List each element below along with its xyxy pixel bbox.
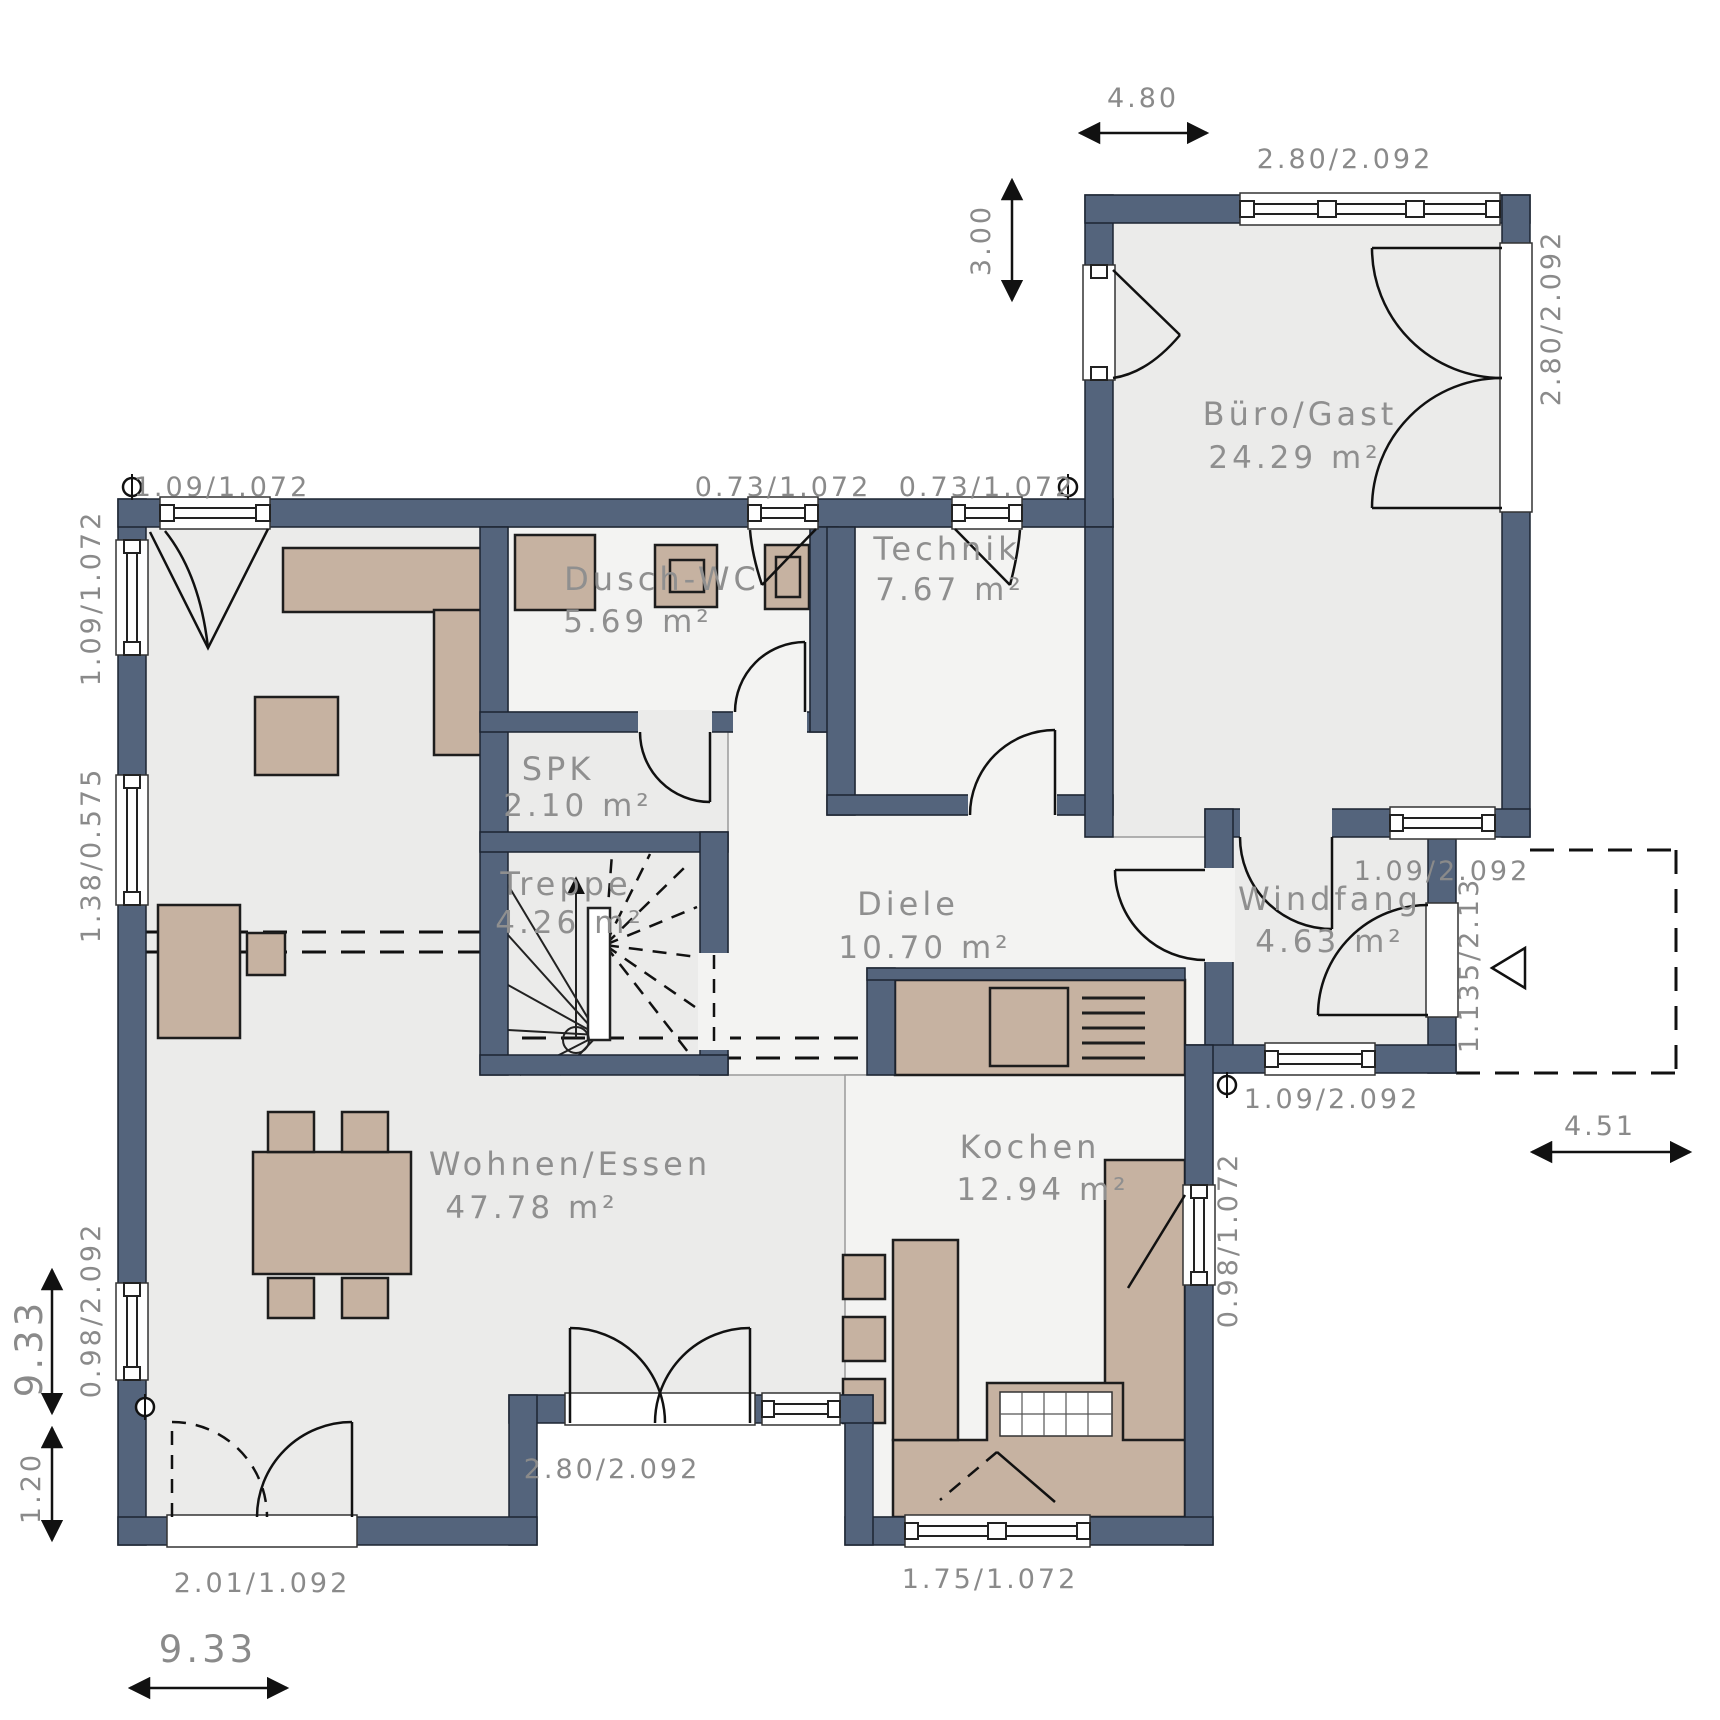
- wall-treppe-south: [480, 1055, 728, 1075]
- room-area-spk: 2.10 m²: [503, 788, 653, 824]
- wall-spk-south: [480, 832, 728, 852]
- room-area-diele: 10.70 m²: [838, 930, 1011, 966]
- room-label-kochen: Kochen: [960, 1128, 1101, 1166]
- opening-label-wing-right: 2.80/2.092: [1536, 230, 1567, 407]
- kitchen-wall-east: [1185, 1045, 1213, 1545]
- floor-plan-drawing: Büro/Gast 24.29 m² Technik 7.67 m² Dusch…: [0, 0, 1720, 1720]
- bar-stool: [843, 1255, 885, 1299]
- opening-label-kitchen-east: 0.98/1.072: [1213, 1152, 1244, 1329]
- sofa-horizontal: [283, 548, 498, 612]
- room-label-wohnen: Wohnen/Essen: [429, 1145, 711, 1183]
- room-label-technik: Technik: [872, 530, 1020, 568]
- cooktop: [990, 988, 1068, 1066]
- window-left-top: [116, 540, 148, 655]
- dim-wing-width: 4.80: [1107, 83, 1179, 114]
- room-area-buero: 24.29 m²: [1208, 440, 1381, 476]
- sideboard: [158, 905, 240, 1038]
- room-label-spk: SPK: [522, 750, 595, 788]
- kitchen-island: [893, 1240, 958, 1440]
- dim-left-height: 9.33: [8, 1299, 51, 1397]
- opening-label-left-bottom: 0.98/2.092: [76, 1222, 107, 1399]
- toilet-bowl: [776, 557, 800, 597]
- opening-label-entry-door: 1.135/2.13: [1454, 877, 1485, 1054]
- window-left-bottom: [116, 1283, 148, 1380]
- room-label-diele: Diele: [857, 885, 959, 923]
- door-treppe-opening: [698, 953, 730, 1050]
- window-wing-bottom: [1390, 807, 1495, 839]
- window-wing-top: [1240, 193, 1500, 225]
- opening-label-left-mid: 1.38/0.575: [76, 767, 107, 944]
- room-area-dusch-wc: 5.69 m²: [563, 604, 713, 640]
- room-label-dusch-wc: Dusch-WC: [564, 560, 760, 598]
- room-area-technik: 7.67 m²: [875, 572, 1025, 608]
- dining-chair: [268, 1278, 314, 1318]
- wall-kitchen-stub: [867, 968, 895, 1075]
- window-windfang-bottom: [1265, 1043, 1375, 1075]
- wall-kitchen-counter-line: [867, 968, 1185, 980]
- bar-stool: [843, 1317, 885, 1361]
- opening-label-left-top: 1.09/1.072: [76, 510, 107, 687]
- dining-chair: [342, 1278, 388, 1318]
- dim-bottom-width: 9.33: [159, 1628, 257, 1671]
- opening-label-patio-left: 2.01/1.092: [174, 1568, 351, 1599]
- dim-right-width: 4.51: [1564, 1111, 1636, 1142]
- room-area-windfang: 4.63 m²: [1255, 924, 1405, 960]
- entrance-arrow-icon: [1492, 948, 1525, 988]
- floor-plan-canvas: Büro/Gast 24.29 m² Technik 7.67 m² Dusch…: [0, 0, 1720, 1720]
- room-label-treppe: Treppe: [499, 865, 631, 903]
- wall-technik-east: [1085, 527, 1113, 837]
- opening-label-wing-bottom: 1.09/2.092: [1354, 856, 1531, 887]
- opening-label-top-wc: 0.73/1.072: [695, 472, 872, 503]
- window-terrace-fixed: [762, 1393, 840, 1425]
- room-area-wohnen: 47.78 m²: [445, 1190, 618, 1226]
- window-left-mid: [116, 775, 148, 905]
- dining-chair: [268, 1112, 314, 1152]
- opening-label-windfang-bottom: 1.09/2.092: [1244, 1084, 1421, 1115]
- room-label-buero: Büro/Gast: [1203, 395, 1398, 433]
- room-area-kochen: 12.94 m²: [956, 1172, 1129, 1208]
- wall-technik-west: [827, 527, 855, 815]
- dim-wing-depth: 3.00: [966, 204, 997, 276]
- opening-label-top-left: 1.09/1.072: [134, 472, 311, 503]
- coffee-table: [255, 697, 338, 775]
- opening-label-terrace: 2.80/2.092: [524, 1454, 701, 1485]
- opening-label-wing-top: 2.80/2.092: [1257, 144, 1434, 175]
- opening-label-top-technik: 0.73/1.072: [899, 472, 1076, 503]
- room-area-treppe: 4.26 m²: [495, 905, 645, 941]
- dim-left-extra: 1.20: [16, 1452, 47, 1524]
- side-table: [247, 933, 285, 975]
- dining-chair: [342, 1112, 388, 1152]
- survey-point-icon: [1218, 1072, 1236, 1098]
- dining-table: [253, 1152, 411, 1274]
- opening-label-kitchen-bottom: 1.75/1.072: [902, 1564, 1079, 1595]
